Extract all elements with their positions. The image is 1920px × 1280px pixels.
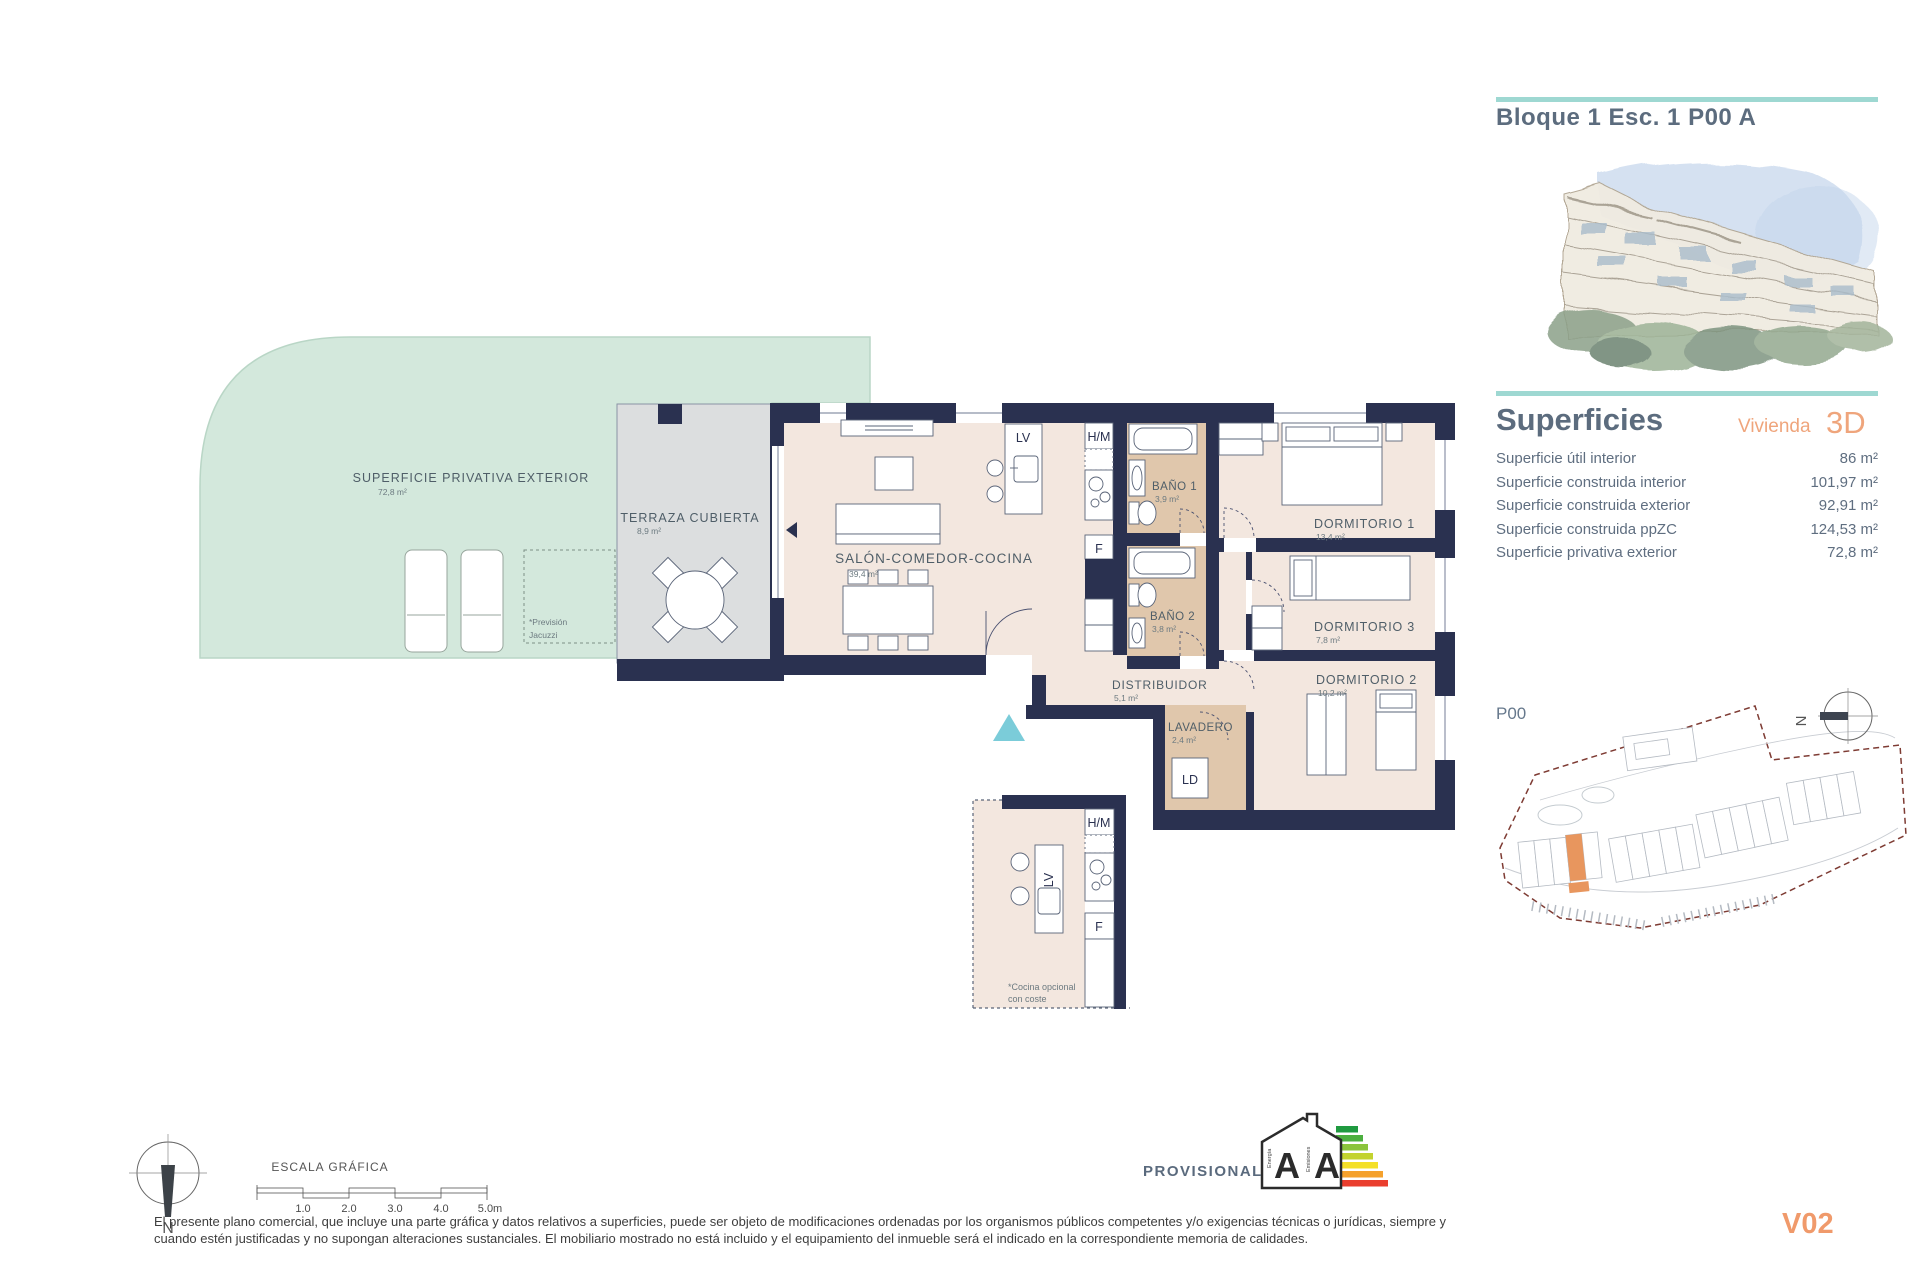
area-lavadero: 2,4 m² bbox=[1172, 735, 1196, 745]
table-row: Superficie privativa exterior 72,8 m² bbox=[1496, 541, 1878, 565]
table-row: Superficie útil interior 86 m² bbox=[1496, 447, 1878, 471]
label-lavadero: LAVADERO bbox=[1168, 722, 1233, 734]
superficies-accent-rule bbox=[1496, 391, 1878, 396]
table-row: Superficie construida exterior 92,91 m² bbox=[1496, 494, 1878, 518]
row-value: 124,53 m² bbox=[1810, 518, 1878, 542]
plan-drawing: SUPERFICIE PRIVATIVA EXTERIOR 72,8 m² *P… bbox=[0, 0, 1920, 1280]
row-label: Superficie útil interior bbox=[1496, 447, 1636, 471]
room-terraza-cubierta: TERRAZA CUBIERTA 8,9 m² bbox=[617, 404, 784, 681]
room-label: SUPERFICIE PRIVATIVA EXTERIOR bbox=[353, 471, 590, 485]
area-bano2: 3,8 m² bbox=[1152, 624, 1176, 634]
energy-letter: A bbox=[1314, 1145, 1340, 1186]
row-value: 86 m² bbox=[1840, 447, 1878, 471]
row-value: 72,8 m² bbox=[1827, 541, 1878, 565]
site-north-compass: N bbox=[1793, 688, 1878, 744]
optional-kitchen-note-1: *Cocina opcional bbox=[1008, 982, 1076, 992]
siteplan-floor-label: P00 bbox=[1496, 704, 1526, 724]
appliance-f-label: F bbox=[1095, 920, 1103, 934]
appliance-lv-label: LV bbox=[1042, 872, 1056, 887]
superficies-table: Superficie útil interior 86 m² Superfici… bbox=[1496, 447, 1878, 565]
superficies-title: Superficies bbox=[1496, 402, 1663, 438]
area-dorm2: 10,2 m² bbox=[1318, 688, 1347, 698]
energy-letter: A bbox=[1274, 1145, 1300, 1186]
label-salon: SALÓN-COMEDOR-COCINA bbox=[835, 551, 1033, 566]
entry-arrow bbox=[993, 714, 1025, 741]
floorplan-sheet: SUPERFICIE PRIVATIVA EXTERIOR 72,8 m² *P… bbox=[0, 0, 1920, 1280]
title-accent-rule bbox=[1496, 97, 1878, 102]
room-area: 72,8 m² bbox=[378, 487, 407, 497]
appliance-hm-label: H/M bbox=[1088, 430, 1111, 444]
area-dorm3: 7,8 m² bbox=[1316, 635, 1340, 645]
building-render bbox=[1545, 160, 1888, 370]
area-salon: 39,4 m² bbox=[849, 569, 878, 579]
area-bano1: 3,9 m² bbox=[1155, 494, 1179, 504]
site-north-label: N bbox=[1793, 716, 1810, 727]
room-label: TERRAZA CUBIERTA bbox=[620, 511, 759, 525]
label-dorm1: DORMITORIO 1 bbox=[1314, 517, 1415, 531]
scale-bar: ESCALA GRÁFICA 1.0 2.0 3.0 4.0 5.0m bbox=[257, 1159, 502, 1215]
disclaimer-line-2: cuando estén justificadas y no supongan … bbox=[154, 1231, 1464, 1248]
appliance-f-label: F bbox=[1095, 542, 1103, 556]
label-bano1: BAÑO 1 bbox=[1152, 480, 1197, 493]
legal-disclaimer: El presente plano comercial, que incluye… bbox=[154, 1214, 1464, 1247]
version-label: V02 bbox=[1782, 1208, 1834, 1241]
optional-kitchen-note-2: con coste bbox=[1008, 994, 1047, 1004]
jacuzzi-note-1: *Previsión bbox=[529, 617, 568, 627]
row-label: Superficie privativa exterior bbox=[1496, 541, 1677, 565]
row-label: Superficie construida exterior bbox=[1496, 494, 1690, 518]
energy-axis-label: Energía bbox=[1267, 1148, 1273, 1168]
label-bano2: BAÑO 2 bbox=[1150, 610, 1195, 623]
scale-bar-title: ESCALA GRÁFICA bbox=[271, 1159, 388, 1174]
superficies-3d-badge: 3D bbox=[1826, 405, 1866, 441]
optional-kitchen: H/M LV F *Cocina opcional con coste bbox=[973, 795, 1130, 1009]
disclaimer-line-1: El presente plano comercial, que incluye… bbox=[154, 1214, 1464, 1231]
row-value: 101,97 m² bbox=[1810, 471, 1878, 495]
jacuzzi-note-2: Jacuzzi bbox=[529, 630, 557, 640]
label-dorm2: DORMITORIO 2 bbox=[1316, 673, 1417, 687]
label-dorm3: DORMITORIO 3 bbox=[1314, 620, 1415, 634]
provisional-label: PROVISIONAL bbox=[1143, 1163, 1263, 1180]
area-distribuidor: 5,1 m² bbox=[1114, 693, 1138, 703]
room-area: 8,9 m² bbox=[637, 526, 661, 536]
energy-axis-label: Emisiones bbox=[1306, 1146, 1312, 1172]
page-title: Bloque 1 Esc. 1 P00 A bbox=[1496, 104, 1756, 132]
energy-certificate-icon: Energía A Emisiones A bbox=[1262, 1114, 1388, 1188]
row-value: 92,91 m² bbox=[1819, 494, 1878, 518]
label-distribuidor: DISTRIBUIDOR bbox=[1112, 678, 1208, 692]
site-plan: N bbox=[1500, 688, 1906, 928]
area-dorm1: 13,4 m² bbox=[1316, 532, 1345, 542]
appliance-hm-label: H/M bbox=[1088, 816, 1111, 830]
row-label: Superficie construida ppZC bbox=[1496, 518, 1677, 542]
superficies-subtitle: Vivienda bbox=[1738, 416, 1811, 438]
appliance-ld-label: LD bbox=[1182, 773, 1198, 787]
table-row: Superficie construida interior 101,97 m² bbox=[1496, 471, 1878, 495]
appliance-lv-label: LV bbox=[1016, 431, 1031, 445]
row-label: Superficie construida interior bbox=[1496, 471, 1686, 495]
table-row: Superficie construida ppZC 124,53 m² bbox=[1496, 518, 1878, 542]
